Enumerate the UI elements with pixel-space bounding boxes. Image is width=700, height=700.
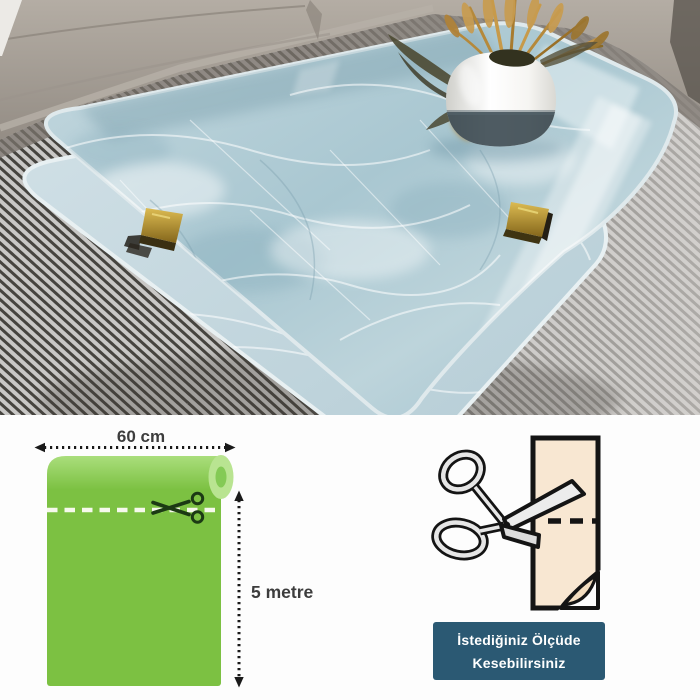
badge-line1: İstediğiniz Ölçüde [433,629,605,652]
info-panel: 60 cm [0,415,700,700]
film-roll [47,455,234,686]
photo-illustration [0,0,700,415]
roll-core [216,467,227,488]
height-arrow [234,491,243,688]
height-label: 5 metre [251,582,314,602]
roll-size-diagram: 60 cm [30,420,330,695]
cut-paper-illustration [420,425,620,625]
lifestyle-photo [0,0,700,415]
width-label: 60 cm [117,427,165,446]
product-image: 60 cm [0,0,700,700]
badge-line2: Kesebilirsiniz [433,652,605,675]
cut-info-badge: İstediğiniz Ölçüde Kesebilirsiniz [433,622,605,680]
